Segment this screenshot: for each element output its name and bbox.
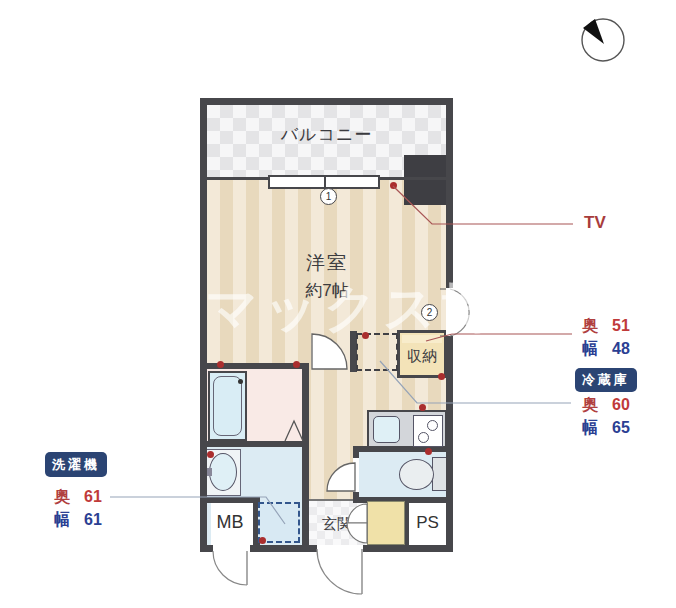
floorplan-canvas: バルコニー 洋室 約7帖 収納 玄関 MB PS 1 2 TV 奥 51 幅 4… [0,0,676,608]
washer-leader-line [110,497,285,524]
tv-leader-line [393,186,573,224]
toilet-door [327,463,355,491]
fridge-leader-line [380,361,571,403]
shoe-cabinet-door-bottom [347,523,367,543]
shoe-cabinet-door-top [348,504,367,523]
bath-folding-door [285,421,303,441]
entrance-door-arc [317,549,362,594]
mb-door-arc [213,551,247,585]
watermark-text: グマックス博 [146,274,500,344]
